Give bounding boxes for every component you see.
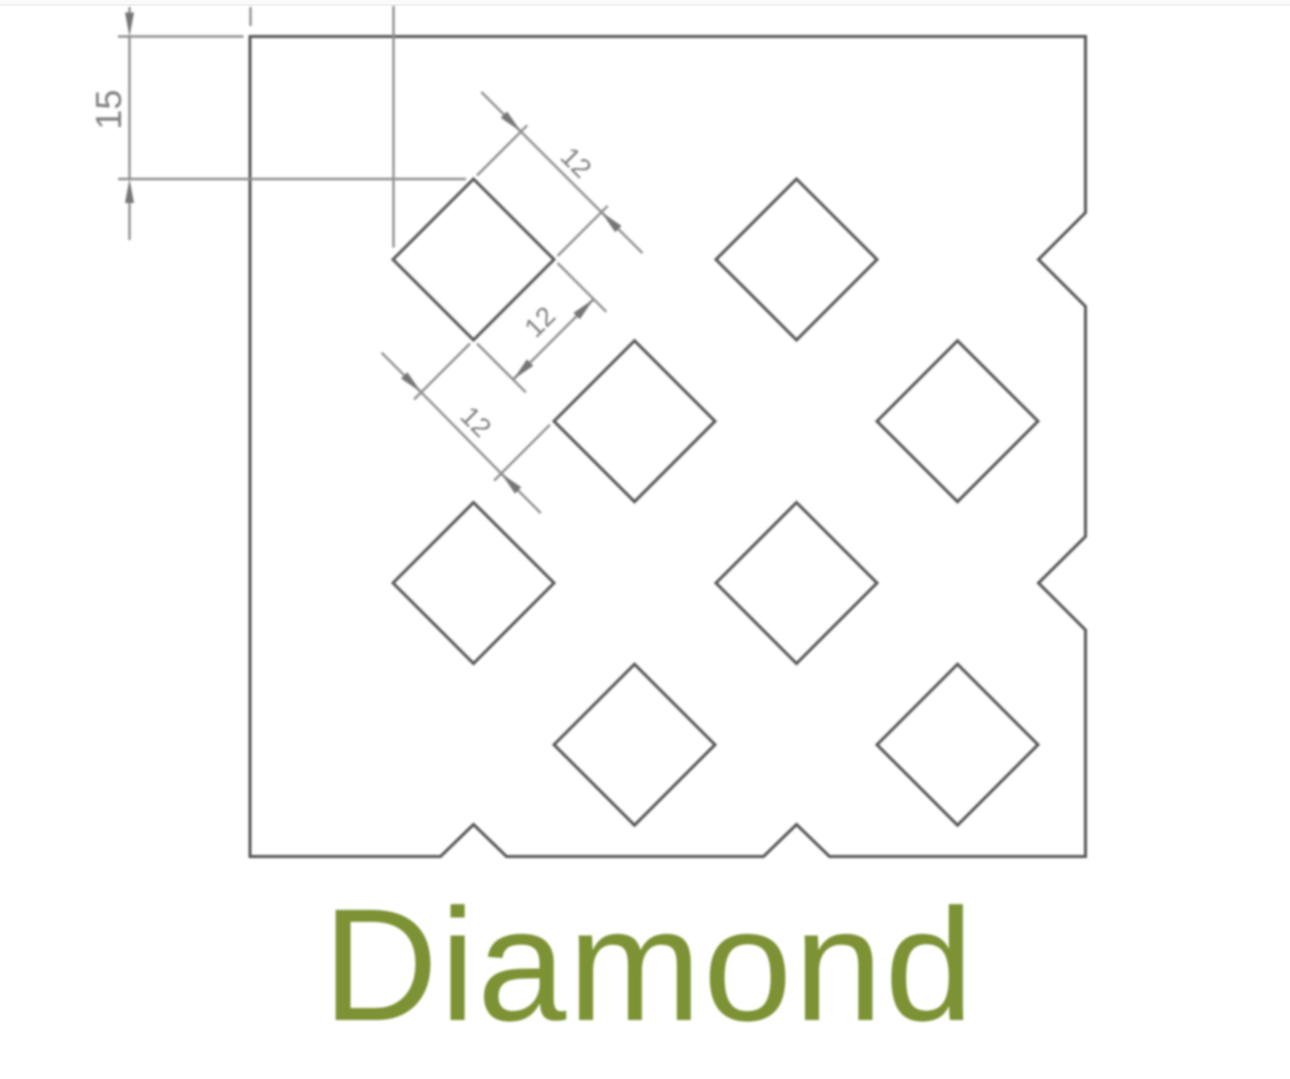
svg-text:15: 15 <box>88 90 129 130</box>
svg-text:12: 12 <box>555 141 597 183</box>
svg-text:12: 12 <box>454 401 496 443</box>
svg-text:Diamond: Diamond <box>323 875 976 1054</box>
